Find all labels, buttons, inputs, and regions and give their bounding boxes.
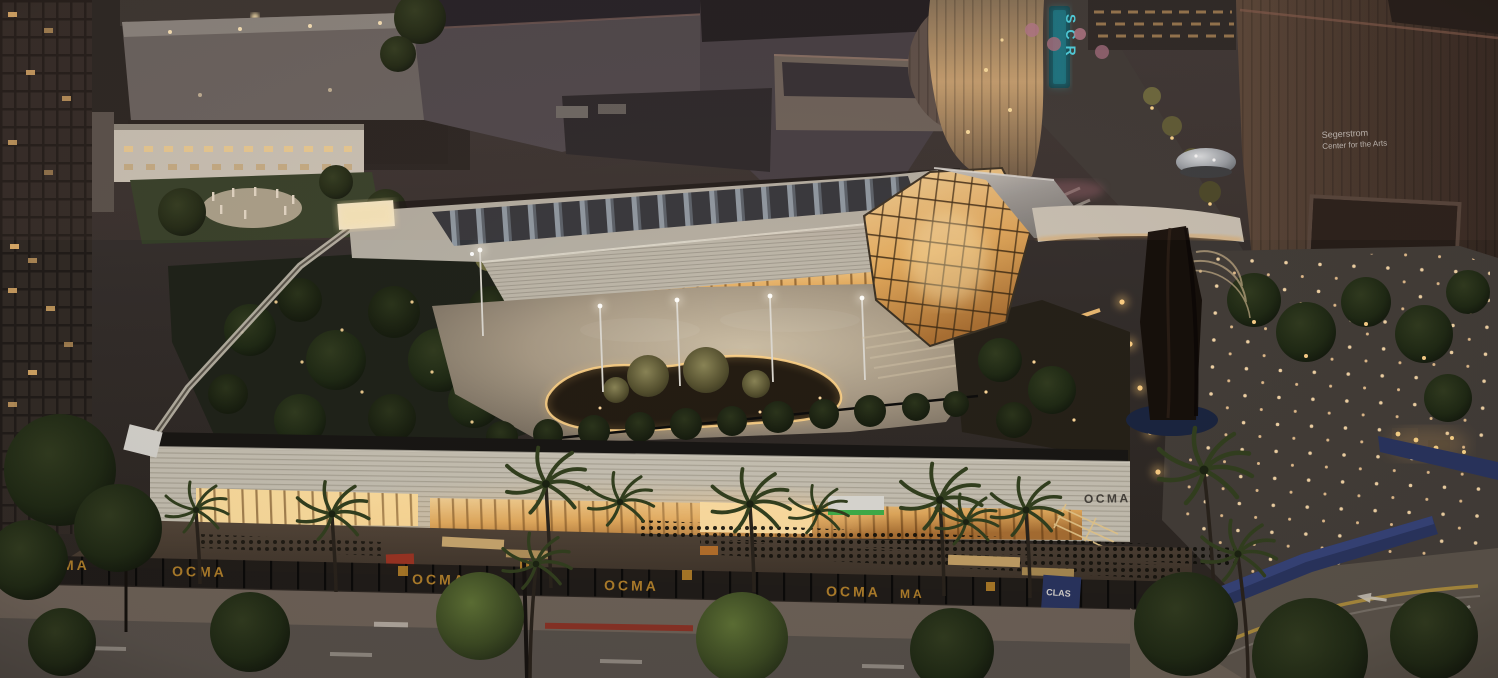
vignette xyxy=(0,0,1498,678)
aerial-dusk-photo-ocma-museum: SCR Segerstrom Center for the Arts xyxy=(0,0,1498,678)
photo-canvas: SCR Segerstrom Center for the Arts xyxy=(0,0,1498,678)
